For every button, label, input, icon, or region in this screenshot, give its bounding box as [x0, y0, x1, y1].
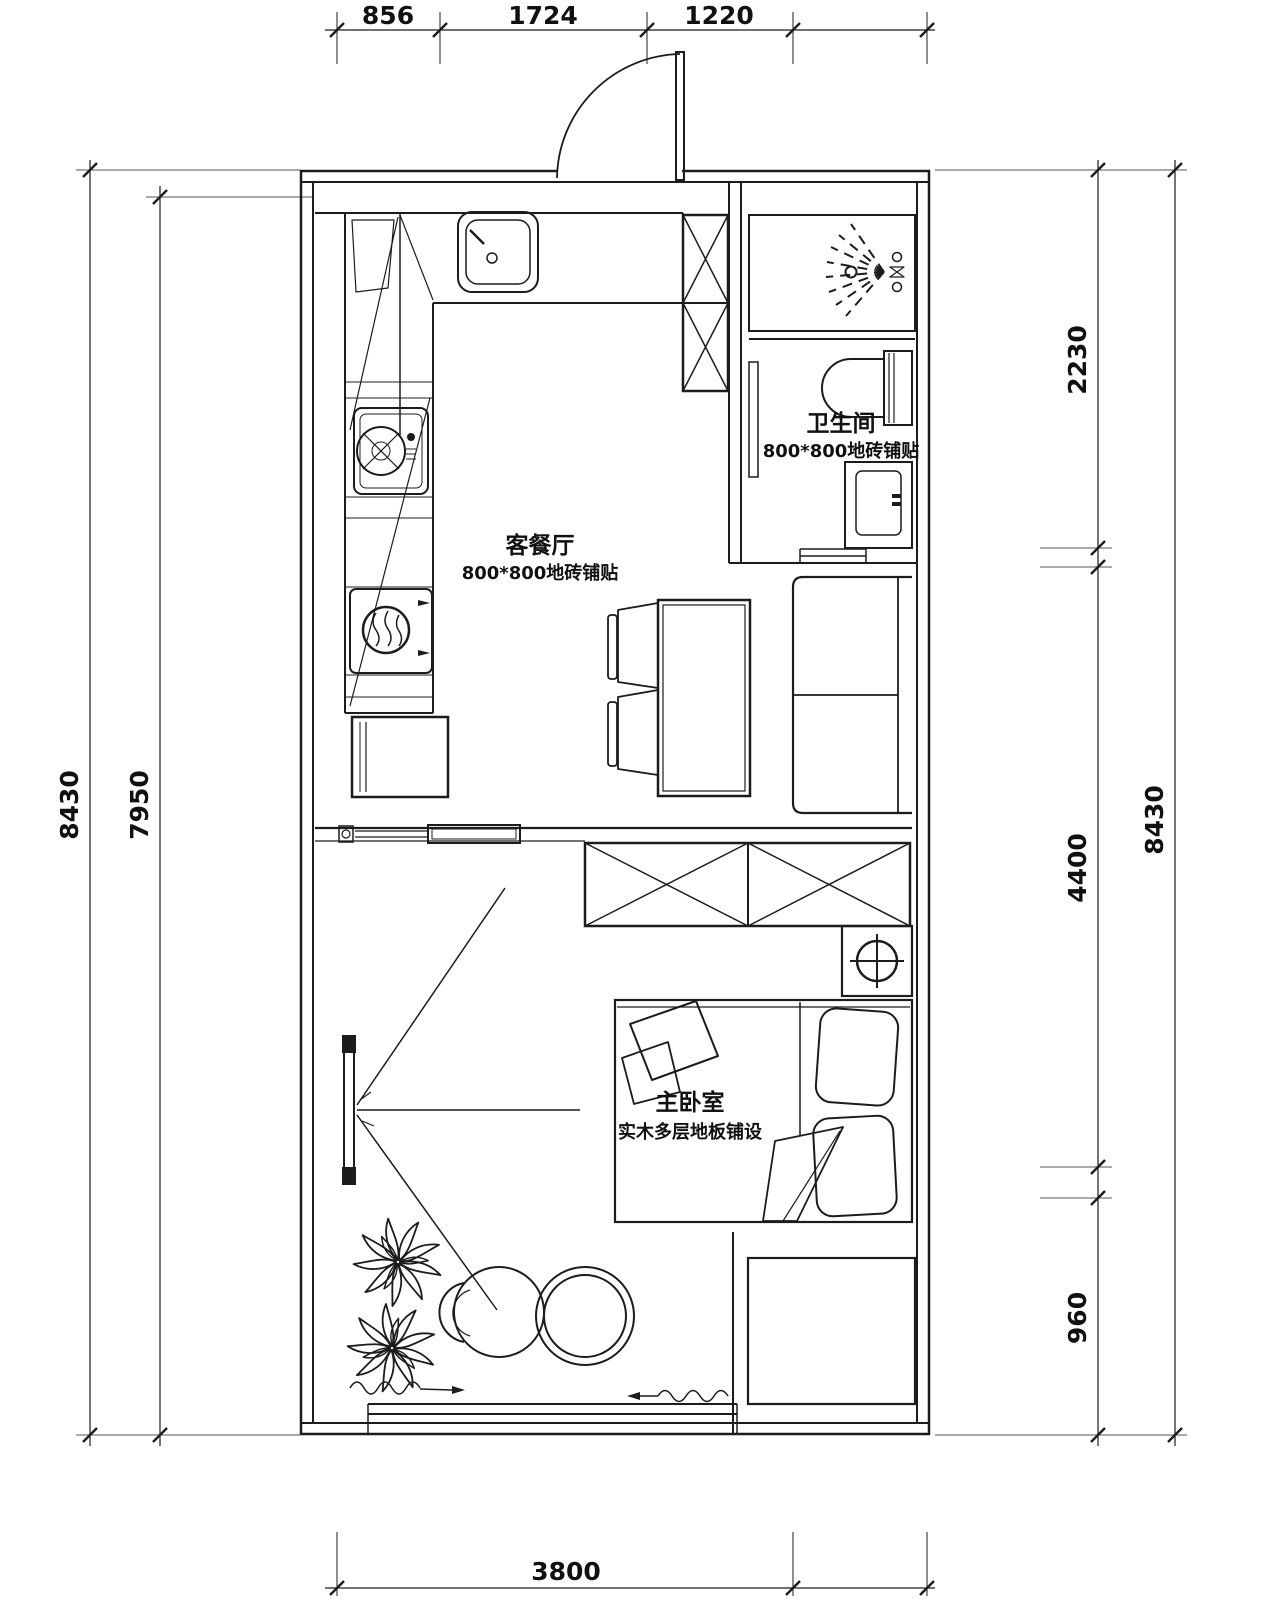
door-leaf [676, 52, 684, 180]
dim-left-inner: 7950 [125, 770, 154, 840]
balcony-window [368, 1404, 737, 1434]
dim-right-outer: 8430 [1140, 785, 1169, 855]
floor-plan-svg: 856 1724 1220 3800 8430 7950 [0, 0, 1279, 1600]
fridge [352, 717, 448, 797]
blanket-fold [763, 1127, 843, 1221]
kitchen-sink [458, 212, 538, 292]
dim-right-1: 2230 [1063, 325, 1092, 395]
bathroom-finish-label: 800*800地砖铺贴 [763, 440, 920, 462]
steam-icon [373, 613, 379, 646]
shower-head-icon [826, 224, 904, 316]
bathroom-sliding-door [749, 362, 758, 477]
floor-plan-canvas: 856 1724 1220 3800 8430 7950 [0, 0, 1279, 1600]
dining-table [658, 600, 750, 796]
dim-bottom-1: 3800 [531, 1557, 601, 1586]
dim-left-outer: 8430 [55, 770, 84, 840]
dim-top-3: 1220 [684, 1, 754, 30]
shower-area [749, 215, 915, 331]
bathroom-label: 卫生间 [807, 411, 876, 437]
bedroom-closet [733, 1232, 915, 1434]
sofa [793, 577, 912, 813]
tv-unit [342, 888, 580, 1310]
washing-machine [842, 926, 912, 996]
kitchen-counter [315, 213, 683, 713]
sliding-partition [315, 825, 912, 843]
dim-top-1: 856 [362, 1, 414, 30]
faucet-icon [470, 230, 484, 244]
counter-break-line [350, 398, 430, 706]
dining-chair [608, 690, 658, 775]
door-swing-arc [557, 54, 680, 178]
stove-knob-icon [407, 433, 415, 441]
washbasin [845, 462, 912, 548]
bathroom-threshold [741, 549, 918, 563]
tv-sight-line [357, 1115, 497, 1310]
tv-sight-line [357, 888, 505, 1105]
bedroom: 主卧室 实木多层地板铺设 [332, 888, 915, 1434]
gas-stove [354, 408, 428, 494]
entry-door [557, 52, 684, 180]
exterior-walls [300, 170, 930, 1435]
shoe-cabinet [683, 215, 728, 391]
bedroom-finish-label: 实木多层地板铺设 [618, 1121, 762, 1143]
curtain-symbol [627, 1391, 728, 1402]
bedroom-label: 主卧室 [656, 1089, 725, 1116]
wardrobe [585, 843, 910, 926]
living-dining: 客餐厅 800*800地砖铺贴 [462, 532, 912, 813]
bathroom: 卫生间 800*800地砖铺贴 [729, 182, 919, 563]
pillow [815, 1007, 899, 1106]
dimension-right: 2230 4400 960 8430 [935, 160, 1187, 1446]
dimension-bottom: 3800 [325, 1532, 935, 1596]
dimension-top: 856 1724 1220 [325, 1, 935, 64]
side-stool [439, 1267, 544, 1357]
side-stool [536, 1267, 634, 1365]
dim-right-3: 960 [1063, 1292, 1092, 1344]
dining-chair [608, 603, 658, 688]
curtain-symbol [350, 1382, 465, 1394]
dimension-left: 8430 7950 [55, 160, 313, 1446]
living-finish-label: 800*800地砖铺贴 [462, 562, 619, 584]
dim-top-2: 1724 [508, 1, 578, 30]
kitchen-upper-cabinet [350, 213, 433, 435]
dim-right-2: 4400 [1063, 833, 1092, 903]
living-label: 客餐厅 [506, 532, 575, 559]
